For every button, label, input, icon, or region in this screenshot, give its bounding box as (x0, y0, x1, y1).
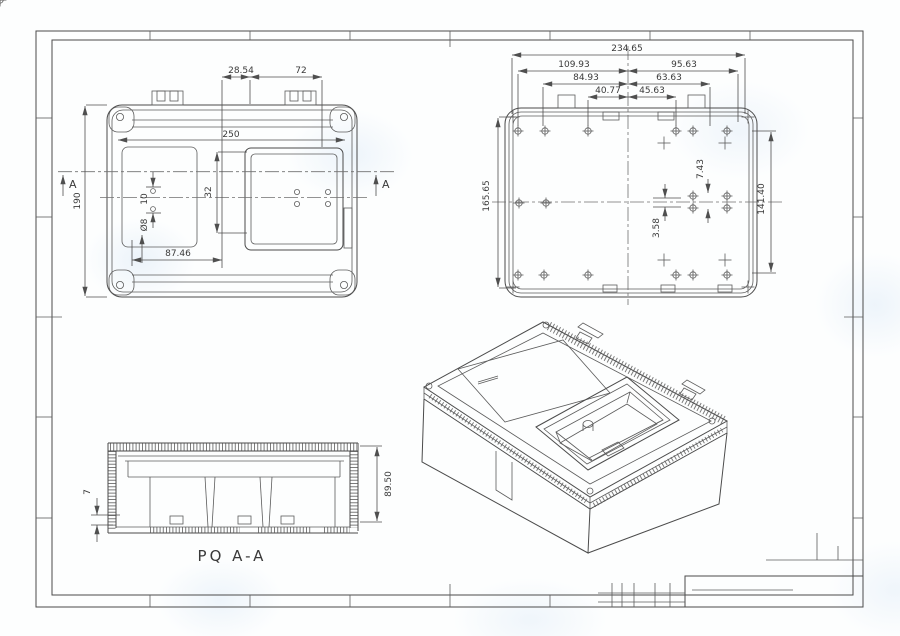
dim-95-63: 95.63 (671, 60, 697, 70)
view-section: 89.50 7 PQ A-A (83, 443, 394, 565)
side-slot (344, 208, 352, 248)
mounting-holes (0, 0, 733, 281)
cad-drawing: A A 250 190 28.54 72 32 10 (0, 0, 900, 636)
window-screw-holes (151, 189, 331, 212)
section-label-right: A (382, 178, 390, 191)
dim-7-43: 7.43 (696, 159, 706, 179)
dim-63-63: 63.63 (656, 73, 682, 83)
dim-40-77: 40.77 (595, 86, 621, 96)
dim-87-46: 87.46 (165, 249, 191, 259)
sheet-border (36, 31, 863, 607)
drawing-sheet: A A 250 190 28.54 72 32 10 (0, 0, 900, 636)
cable-tab-right (285, 91, 316, 105)
view-bottom: 234.65 109.93 95.63 84.93 63.63 40.77 45… (0, 0, 782, 305)
dim-45-63: 45.63 (639, 86, 665, 96)
dim-84-93: 84.93 (573, 73, 599, 83)
iso-window-cavity (536, 377, 679, 470)
title-block (598, 533, 863, 607)
cable-tab-left (152, 91, 183, 105)
view-top: A A 250 190 28.54 72 32 10 (58, 66, 395, 297)
dim-89-50: 89.50 (384, 471, 394, 497)
section-label-left: A (69, 178, 77, 191)
section-ribs (205, 477, 272, 527)
dim-165-65: 165.65 (482, 180, 492, 212)
view-isometric (422, 322, 727, 553)
section-caption: PQ A-A (198, 547, 267, 565)
bottom-view-dimensions: 234.65 109.93 95.63 84.93 63.63 40.77 45… (482, 44, 776, 288)
window-frame (245, 148, 343, 250)
dim-28-54: 28.54 (228, 66, 254, 76)
section-clips (170, 516, 294, 524)
dim-234-65: 234.65 (611, 44, 643, 54)
dim-109-93: 109.93 (558, 60, 590, 70)
dim-dia8: Ø8 (139, 218, 150, 231)
left-compartment (122, 147, 197, 247)
dim-3-58: 3.58 (652, 218, 662, 238)
section-arrow-right: A (376, 175, 390, 196)
dim-32: 32 (204, 186, 214, 197)
dim-250: 250 (222, 130, 239, 140)
dim-141-40: 141.40 (757, 183, 767, 215)
dim-7: 7 (83, 489, 93, 495)
dim-10: 10 (140, 193, 150, 205)
dim-72: 72 (295, 66, 306, 76)
edge-tab (558, 95, 575, 108)
edge-tab (688, 95, 705, 108)
border-grid-ticks (36, 31, 863, 607)
dim-190: 190 (73, 192, 83, 209)
